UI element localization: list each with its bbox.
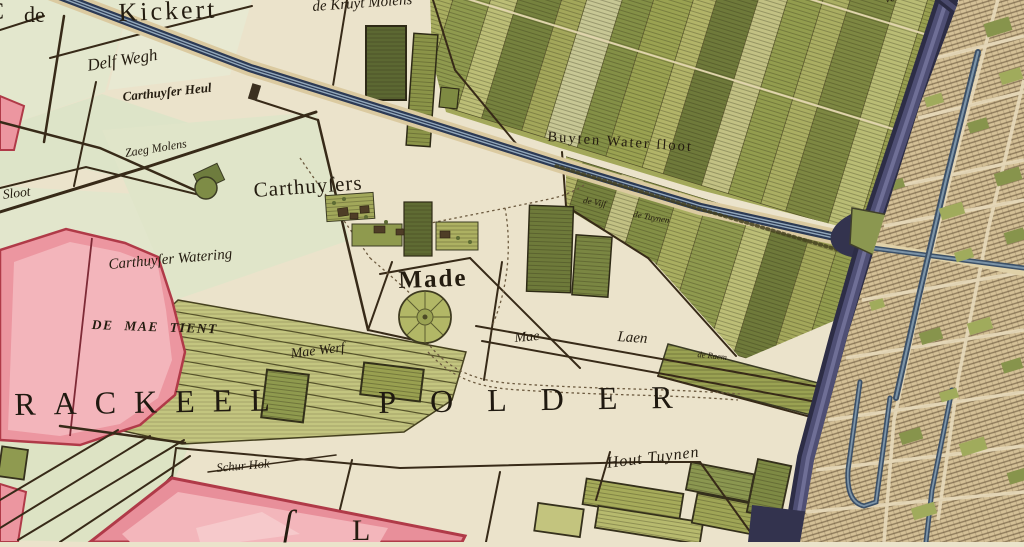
map-label-mae: Mae <box>514 330 540 346</box>
map-label-sloot: Sloot <box>2 185 31 202</box>
map-label-de-article: de <box>24 4 45 26</box>
map-label-polder: POLDER <box>378 380 707 418</box>
map-label-rackeel: RACKEEL <box>14 383 288 420</box>
map-canvas: C de Kickert de Kruyt Molens Delf Wegh C… <box>0 0 1024 542</box>
map-label-partial-c: C <box>0 0 4 24</box>
map-label-laen: Laen <box>617 330 648 347</box>
map-label-partial-s: ſ <box>283 505 293 541</box>
map-artwork <box>0 0 1024 542</box>
map-label-made: Made <box>398 266 468 293</box>
made-grove <box>399 291 451 343</box>
map-label-kickert: Kickert <box>118 0 218 26</box>
